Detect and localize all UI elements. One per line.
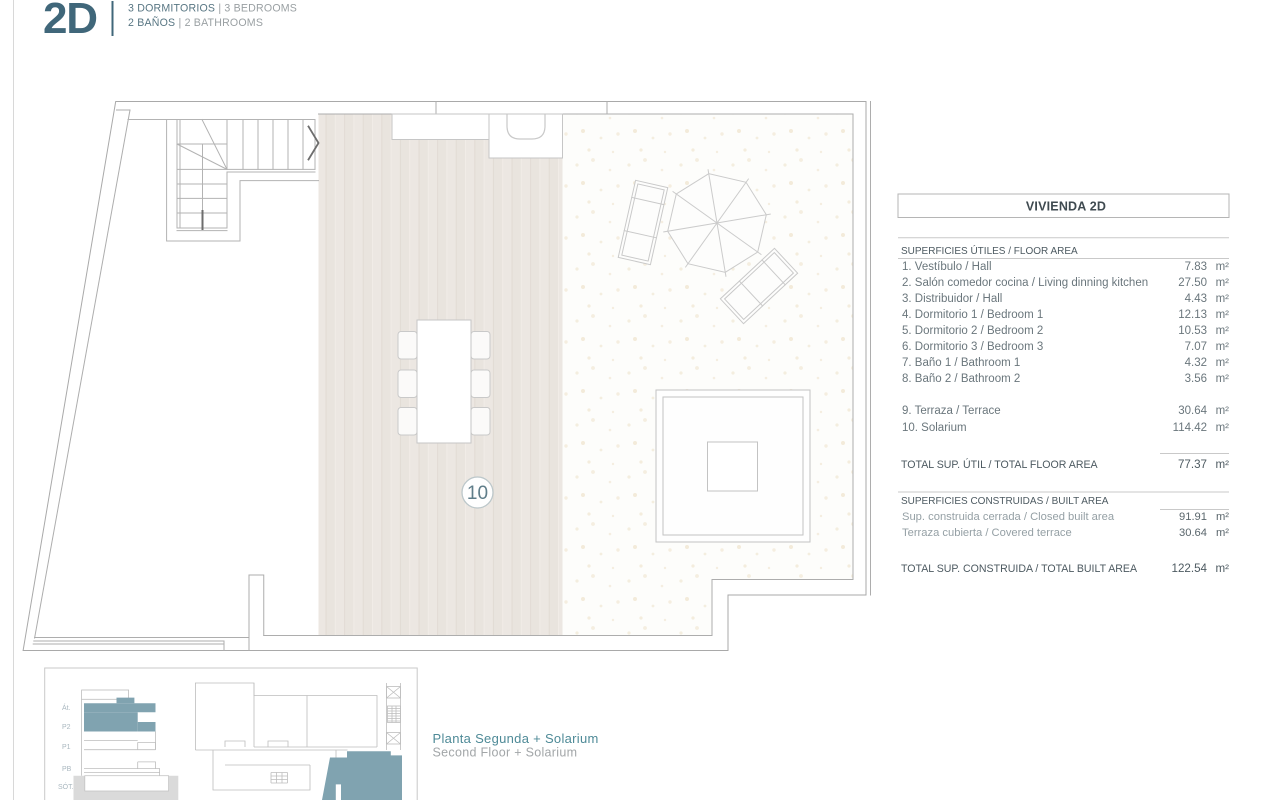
svg-text:27.50: 27.50 [1178, 277, 1207, 289]
svg-text:3. Distribuidor / Hall: 3. Distribuidor / Hall [902, 293, 1002, 305]
svg-text:4.43: 4.43 [1185, 293, 1207, 305]
svg-text:10: 10 [467, 483, 488, 504]
svg-text:Terraza cubierta / Covered ter: Terraza cubierta / Covered terrace [902, 527, 1072, 539]
svg-text:m²: m² [1215, 458, 1229, 471]
svg-text:m²: m² [1216, 527, 1229, 539]
svg-text:Át.: Át. [62, 703, 71, 712]
svg-text:7. Baño 1 / Bathroom 1: 7. Baño 1 / Bathroom 1 [902, 357, 1020, 369]
svg-text:m²: m² [1216, 511, 1229, 523]
svg-text:SÓT.: SÓT. [58, 782, 74, 791]
svg-text:SUPERFICIES CONSTRUIDAS / BUIL: SUPERFICIES CONSTRUIDAS / BUILT AREA [901, 496, 1109, 507]
svg-text:4. Dormitorio 1 / Bedroom 1: 4. Dormitorio 1 / Bedroom 1 [902, 309, 1043, 321]
svg-text:m²: m² [1216, 277, 1230, 289]
svg-text:PB: PB [62, 766, 72, 773]
svg-text:12.13: 12.13 [1178, 309, 1207, 321]
svg-text:3 DORMITORIOS | 3 BEDROOMS: 3 DORMITORIOS | 3 BEDROOMS [128, 3, 297, 15]
svg-text:10. Solarium: 10. Solarium [902, 422, 967, 434]
svg-text:30.64: 30.64 [1179, 527, 1207, 539]
svg-text:1. Vestíbulo / Hall: 1. Vestíbulo / Hall [902, 261, 992, 273]
svg-text:Planta Segunda + Solarium: Planta Segunda + Solarium [433, 731, 599, 746]
svg-text:m²: m² [1216, 357, 1230, 369]
svg-text:30.64: 30.64 [1178, 405, 1207, 417]
svg-text:77.37: 77.37 [1178, 458, 1207, 471]
svg-text:2. Salón comedor cocina / Livi: 2. Salón comedor cocina / Living dinning… [902, 277, 1148, 289]
svg-text:7.83: 7.83 [1185, 261, 1207, 273]
svg-text:122.54: 122.54 [1172, 562, 1208, 575]
svg-text:m²: m² [1215, 562, 1229, 575]
svg-text:Second Floor + Solarium: Second Floor + Solarium [433, 746, 578, 760]
svg-text:P2: P2 [62, 724, 71, 731]
svg-text:P1: P1 [62, 744, 71, 751]
svg-text:m²: m² [1216, 341, 1230, 353]
svg-text:m²: m² [1216, 261, 1230, 273]
svg-text:Sup. construida cerrada / Clos: Sup. construida cerrada / Closed built a… [902, 511, 1115, 523]
svg-text:9. Terraza / Terrace: 9. Terraza / Terrace [902, 405, 1001, 417]
svg-text:91.91: 91.91 [1179, 511, 1207, 523]
svg-text:6. Dormitorio 3 / Bedroom 3: 6. Dormitorio 3 / Bedroom 3 [902, 341, 1043, 353]
svg-text:TOTAL SUP. ÚTIL / TOTAL FLOOR: TOTAL SUP. ÚTIL / TOTAL FLOOR AREA [901, 458, 1099, 471]
svg-text:m²: m² [1216, 405, 1230, 417]
svg-text:2 BAÑOS | 2 BATHROOMS: 2 BAÑOS | 2 BATHROOMS [128, 16, 263, 29]
svg-text:m²: m² [1216, 309, 1230, 321]
svg-text:2D: 2D [43, 0, 97, 43]
svg-text:m²: m² [1216, 422, 1230, 434]
svg-text:m²: m² [1216, 293, 1230, 305]
svg-text:m²: m² [1216, 373, 1230, 385]
svg-text:3.56: 3.56 [1185, 373, 1207, 385]
svg-text:8. Baño 2 / Bathroom 2: 8. Baño 2 / Bathroom 2 [902, 373, 1020, 385]
svg-text:m²: m² [1216, 325, 1230, 337]
svg-text:TOTAL SUP. CONSTRUIDA / TOTAL: TOTAL SUP. CONSTRUIDA / TOTAL BUILT AREA [901, 563, 1138, 575]
svg-text:7.07: 7.07 [1185, 341, 1207, 353]
svg-text:114.42: 114.42 [1173, 422, 1207, 434]
svg-text:VIVIENDA 2D: VIVIENDA 2D [1026, 200, 1106, 214]
svg-text:5. Dormitorio 2 / Bedroom 2: 5. Dormitorio 2 / Bedroom 2 [902, 325, 1043, 337]
svg-text:SUPERFICIES ÚTILES / FLOOR ARE: SUPERFICIES ÚTILES / FLOOR AREA [901, 244, 1078, 257]
svg-text:4.32: 4.32 [1185, 357, 1207, 369]
svg-text:10.53: 10.53 [1178, 325, 1207, 337]
